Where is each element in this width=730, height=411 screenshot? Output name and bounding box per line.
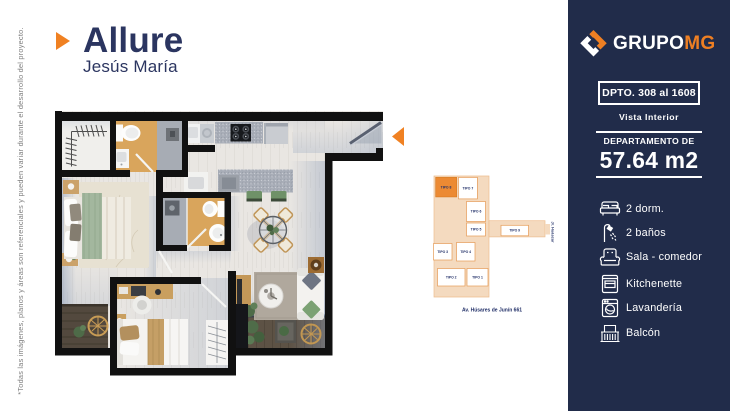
svg-text:TIPO 8: TIPO 8 <box>441 186 452 190</box>
svg-text:Jr. Huáscar: Jr. Huáscar <box>551 222 556 243</box>
svg-text:TIPO 6: TIPO 6 <box>471 210 482 214</box>
svg-text:TIPO 2: TIPO 2 <box>446 275 457 279</box>
svg-text:TIPO 1: TIPO 1 <box>472 275 483 279</box>
svg-text:TIPO 9: TIPO 9 <box>509 229 520 233</box>
svg-text:TIPO 7: TIPO 7 <box>463 187 474 191</box>
svg-text:TIPO 5: TIPO 5 <box>471 228 482 232</box>
svg-text:GRUPOMG: GRUPOMG <box>613 33 715 54</box>
svg-text:TIPO 3: TIPO 3 <box>437 250 448 254</box>
svg-text:Av. Húsares de Junín 661: Av. Húsares de Junín 661 <box>462 308 522 314</box>
svg-text:TIPO 4: TIPO 4 <box>460 250 471 254</box>
